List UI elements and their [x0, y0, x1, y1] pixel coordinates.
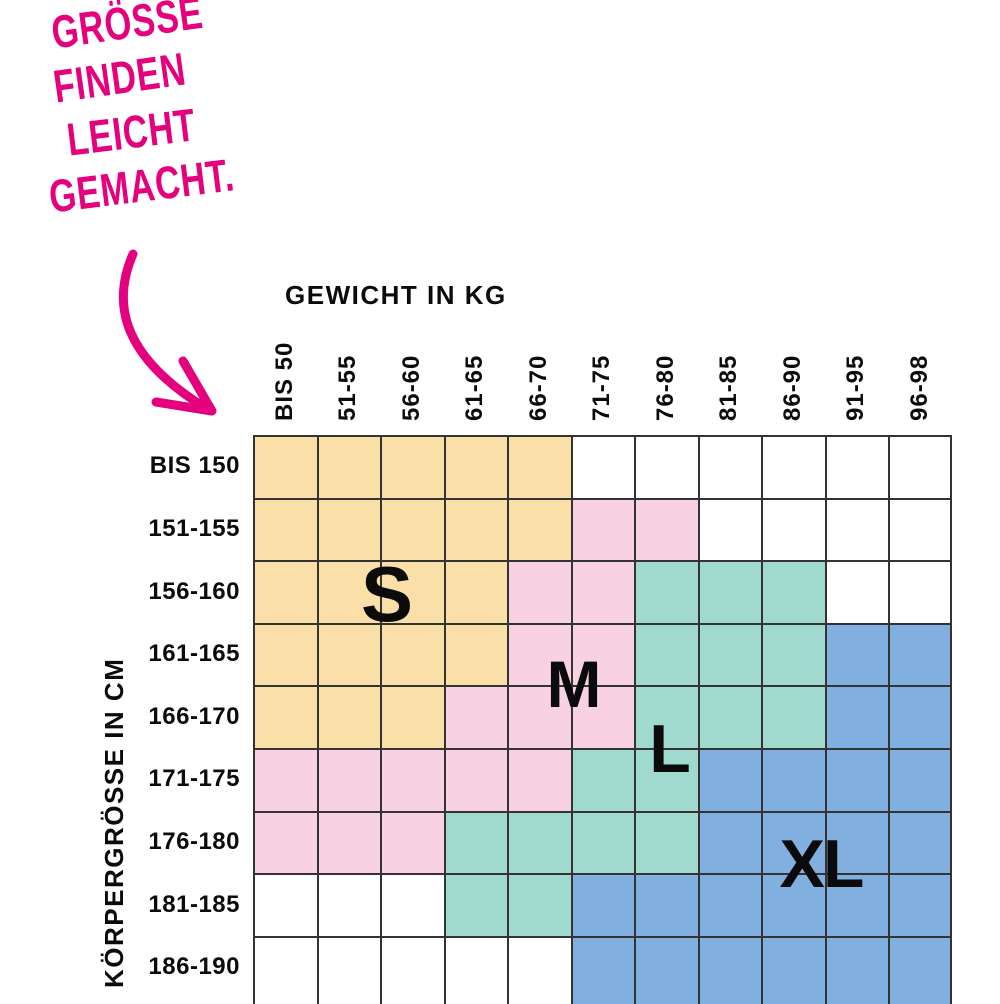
grid-cell [444, 873, 508, 936]
size-label-s: S [361, 555, 413, 633]
grid-cell [698, 811, 762, 874]
col-label: 71-75 [589, 355, 615, 421]
row-label: 156-160 [95, 577, 240, 607]
col-label: 56-60 [399, 355, 425, 421]
grid-cell [317, 936, 381, 1004]
grid-cell [634, 435, 698, 498]
col-label: BIS 50 [272, 342, 298, 421]
grid-cell [698, 623, 762, 686]
grid-cell [317, 873, 381, 936]
grid-cell [825, 623, 889, 686]
grid-cell [888, 873, 952, 936]
x-axis-title: GEWICHT IN KG [285, 280, 507, 311]
grid-cell [634, 936, 698, 1004]
row-label: 151-155 [95, 514, 240, 544]
row-label: 171-175 [95, 764, 240, 794]
grid-cell [317, 811, 381, 874]
grid-cell [253, 873, 317, 936]
col-label: 66-70 [526, 355, 552, 421]
size-label-xl: XL [780, 830, 863, 898]
grid-cell [444, 435, 508, 498]
col-label: 91-95 [843, 355, 869, 421]
grid-cell [571, 811, 635, 874]
grid-cell [634, 811, 698, 874]
size-grid [253, 435, 952, 1004]
grid-cell [698, 936, 762, 1004]
grid-cell [380, 435, 444, 498]
grid-cell [825, 936, 889, 1004]
grid-cell [761, 435, 825, 498]
grid-cell [888, 623, 952, 686]
row-label: 166-170 [95, 702, 240, 732]
grid-cell [380, 873, 444, 936]
grid-cell [507, 936, 571, 1004]
row-label: 161-165 [95, 639, 240, 669]
grid-cell [380, 748, 444, 811]
grid-cell [317, 435, 381, 498]
grid-cell [698, 560, 762, 623]
grid-cell [507, 748, 571, 811]
grid-cell [634, 498, 698, 561]
grid-cell [507, 560, 571, 623]
size-label-m: M [547, 651, 602, 717]
grid-cell [253, 685, 317, 748]
grid-cell [888, 936, 952, 1004]
row-label: 181-185 [95, 890, 240, 920]
curved-arrow-icon [100, 240, 240, 430]
grid-cell [825, 435, 889, 498]
grid-cell [888, 435, 952, 498]
size-label-l: L [649, 715, 691, 783]
grid-cell [253, 560, 317, 623]
row-label: BIS 150 [95, 451, 240, 481]
row-label: 176-180 [95, 827, 240, 857]
col-label: 61-65 [462, 355, 488, 421]
grid-cell [634, 623, 698, 686]
grid-cell [380, 811, 444, 874]
col-label: 81-85 [716, 355, 742, 421]
grid-cell [444, 936, 508, 1004]
grid-cell [761, 560, 825, 623]
grid-cell [571, 873, 635, 936]
grid-cell [317, 748, 381, 811]
grid-cell [888, 748, 952, 811]
grid-cell [571, 498, 635, 561]
grid-cell [507, 498, 571, 561]
grid-cell [444, 685, 508, 748]
grid-cell [253, 811, 317, 874]
grid-cell [698, 873, 762, 936]
grid-cell [253, 748, 317, 811]
grid-cell [761, 936, 825, 1004]
grid-cell [444, 498, 508, 561]
grid-cell [888, 685, 952, 748]
grid-cell [634, 560, 698, 623]
grid-cell [380, 685, 444, 748]
grid-cell [698, 498, 762, 561]
grid-cell [761, 623, 825, 686]
row-label: 186-190 [95, 952, 240, 982]
grid-cell [888, 560, 952, 623]
grid-cell [888, 498, 952, 561]
grid-cell [444, 560, 508, 623]
grid-cell [634, 873, 698, 936]
grid-cell [444, 748, 508, 811]
col-label: 96-98 [907, 355, 933, 421]
grid-cell [888, 811, 952, 874]
grid-cell [444, 623, 508, 686]
grid-cell [253, 498, 317, 561]
grid-cell [380, 936, 444, 1004]
grid-cell [507, 811, 571, 874]
grid-cell [571, 936, 635, 1004]
grid-cell [253, 936, 317, 1004]
grid-cell [825, 498, 889, 561]
grid-cell [253, 435, 317, 498]
col-label: 86-90 [780, 355, 806, 421]
grid-cell [444, 811, 508, 874]
grid-cell [507, 435, 571, 498]
grid-cell [571, 435, 635, 498]
grid-cell [507, 873, 571, 936]
col-label: 76-80 [653, 355, 679, 421]
grid-cell [825, 560, 889, 623]
grid-cell [317, 685, 381, 748]
grid-cell [698, 435, 762, 498]
col-label: 51-55 [335, 355, 361, 421]
grid-cell [698, 685, 762, 748]
grid-cell [761, 748, 825, 811]
grid-cell [761, 498, 825, 561]
grid-cell [253, 623, 317, 686]
grid-cell [825, 685, 889, 748]
grid-cell [571, 748, 635, 811]
grid-cell [825, 748, 889, 811]
grid-cell [571, 560, 635, 623]
grid-cell [761, 685, 825, 748]
grid-cell [698, 748, 762, 811]
